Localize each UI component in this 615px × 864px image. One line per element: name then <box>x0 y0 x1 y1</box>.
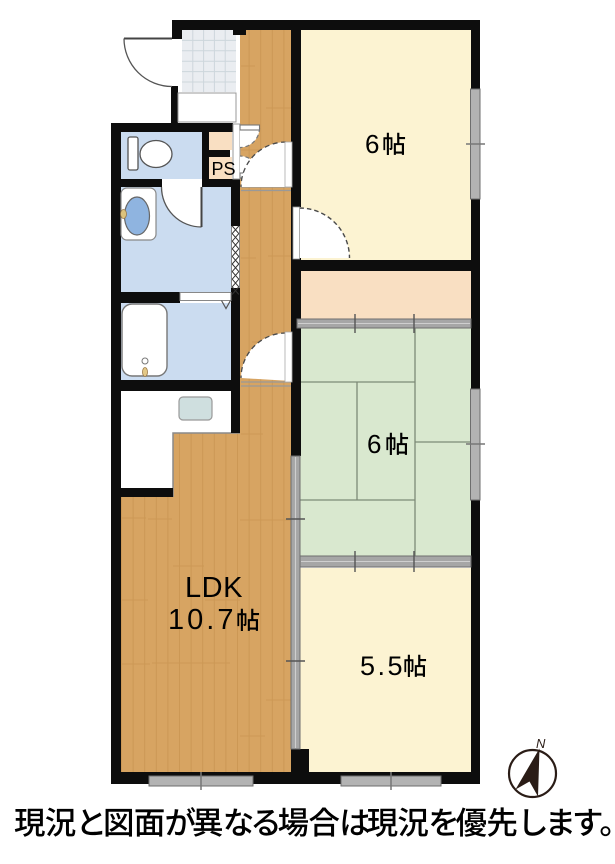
svg-text:LDK: LDK <box>185 572 243 604</box>
svg-text:6: 6 <box>367 429 381 459</box>
svg-text:6: 6 <box>365 129 379 159</box>
svg-text:N: N <box>536 736 546 751</box>
svg-text:5.5: 5.5 <box>360 651 405 681</box>
svg-text:PS: PS <box>212 159 236 179</box>
svg-text:10.7: 10.7 <box>168 604 236 636</box>
